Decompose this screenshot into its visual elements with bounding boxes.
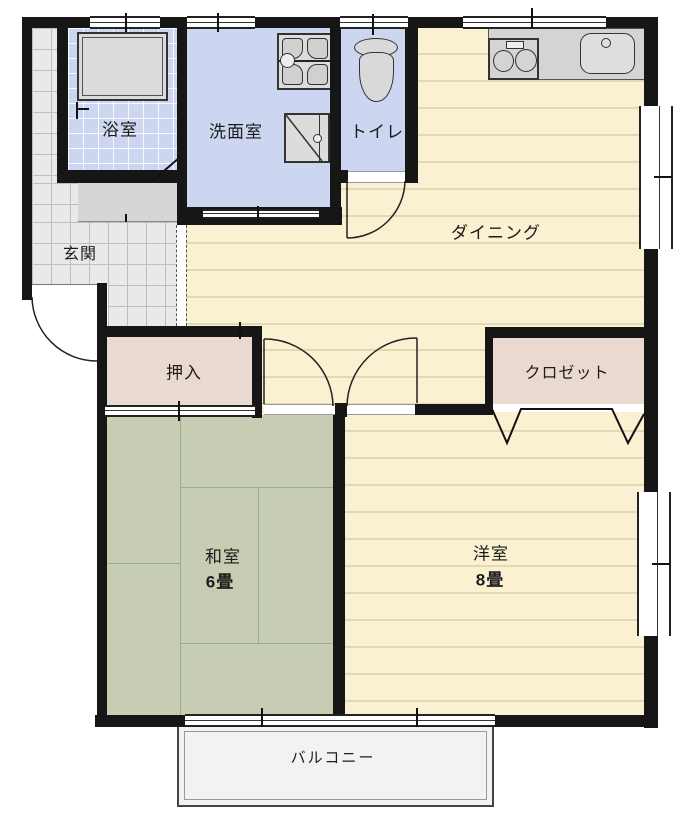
entrance-step-dash (186, 225, 187, 326)
window-tick (531, 8, 533, 29)
japanese-room-size: 6畳 (206, 568, 234, 593)
entrance-step-dash (176, 225, 177, 326)
window-tick (654, 176, 672, 178)
oshiire-fusuma-door (105, 405, 255, 417)
door-tick (178, 401, 180, 421)
pan-quad (307, 38, 328, 59)
shower-faucet-icon (76, 102, 78, 119)
window-tick (652, 563, 670, 565)
wall-segment (22, 17, 90, 28)
pan-valve (280, 53, 295, 68)
wall-segment (177, 28, 187, 225)
window (463, 16, 606, 29)
stove-burners-icon (488, 38, 539, 80)
wall-segment (644, 248, 658, 493)
wall-segment (22, 17, 32, 300)
wall-segment (97, 283, 107, 718)
washroom-label: 洗面室 (209, 118, 263, 143)
western-room-size: 8畳 (476, 566, 504, 591)
oshiire-label: 押入 (166, 359, 202, 384)
stove-burner (515, 49, 537, 72)
balcony-label: バルコニー (291, 747, 376, 768)
wall-segment (644, 17, 658, 108)
door-tick (261, 708, 263, 727)
laundry-pan-icon (277, 33, 333, 90)
wall-segment (333, 415, 345, 718)
wall-segment (485, 327, 646, 338)
door-tick (239, 322, 241, 339)
western-room-label: 洋室 (473, 540, 509, 565)
wall-segment (495, 715, 658, 727)
wall-segment (330, 17, 341, 225)
stove-burner (493, 50, 514, 72)
closet-opening (493, 404, 644, 412)
wall-segment (57, 28, 68, 173)
entrance-tile-left (32, 183, 78, 222)
tatami-line (180, 643, 333, 644)
entrance-tile-strip (32, 28, 57, 183)
wall-segment (160, 17, 187, 28)
wall-segment (330, 170, 348, 183)
wall-segment (415, 404, 493, 415)
bathtub-inner (82, 37, 163, 96)
shower-faucet-arm (76, 108, 89, 110)
faucet-icon (601, 38, 611, 48)
toilet-label: トイレ (350, 118, 404, 143)
window-tick (217, 13, 219, 32)
entrance-tile-main (32, 222, 177, 285)
door-tick (257, 206, 259, 222)
window-tick (372, 14, 374, 35)
entrance-tile-lower (108, 285, 177, 326)
window (187, 16, 255, 29)
bathtub-icon (77, 32, 168, 101)
entrance-door-swing (32, 297, 97, 361)
wall-segment (95, 715, 185, 727)
washroom-sliding-door (203, 209, 319, 219)
dining-label: ダイニング (451, 219, 541, 244)
floor-plan: 浴室 洗面室 トイレ ダイニング 玄関 押入 クロゼット 和室 6畳 洋室 8畳… (0, 0, 696, 817)
wall-segment (255, 17, 340, 28)
tatami-line (180, 417, 181, 715)
tatami-line (258, 487, 259, 643)
entrance-step-edge (32, 284, 98, 285)
wall-segment (57, 170, 177, 183)
window (340, 16, 408, 29)
japanese-room-label: 和室 (205, 543, 241, 568)
bath-landing (78, 183, 177, 222)
landing-mark (125, 214, 127, 222)
toilet-door-opening (348, 171, 405, 183)
step-gap (176, 225, 186, 326)
window-tick (125, 13, 127, 32)
pan-quad (307, 64, 328, 85)
western-room-threshold (347, 404, 415, 415)
door-tick (416, 708, 418, 727)
bathroom-label: 浴室 (102, 116, 138, 141)
wall-segment (97, 326, 262, 337)
stove-grill (506, 41, 524, 49)
entrance-label: 玄関 (63, 240, 97, 264)
japanese-room-threshold (264, 404, 335, 415)
wall-segment (405, 17, 418, 183)
washing-machine-icon (284, 113, 330, 163)
wall-segment (485, 327, 493, 412)
balcony-sliding-door (185, 714, 495, 727)
washer-knob (313, 134, 322, 143)
closet-label: クロゼット (524, 359, 609, 383)
tatami-line (180, 487, 333, 488)
tatami-line (107, 563, 180, 564)
